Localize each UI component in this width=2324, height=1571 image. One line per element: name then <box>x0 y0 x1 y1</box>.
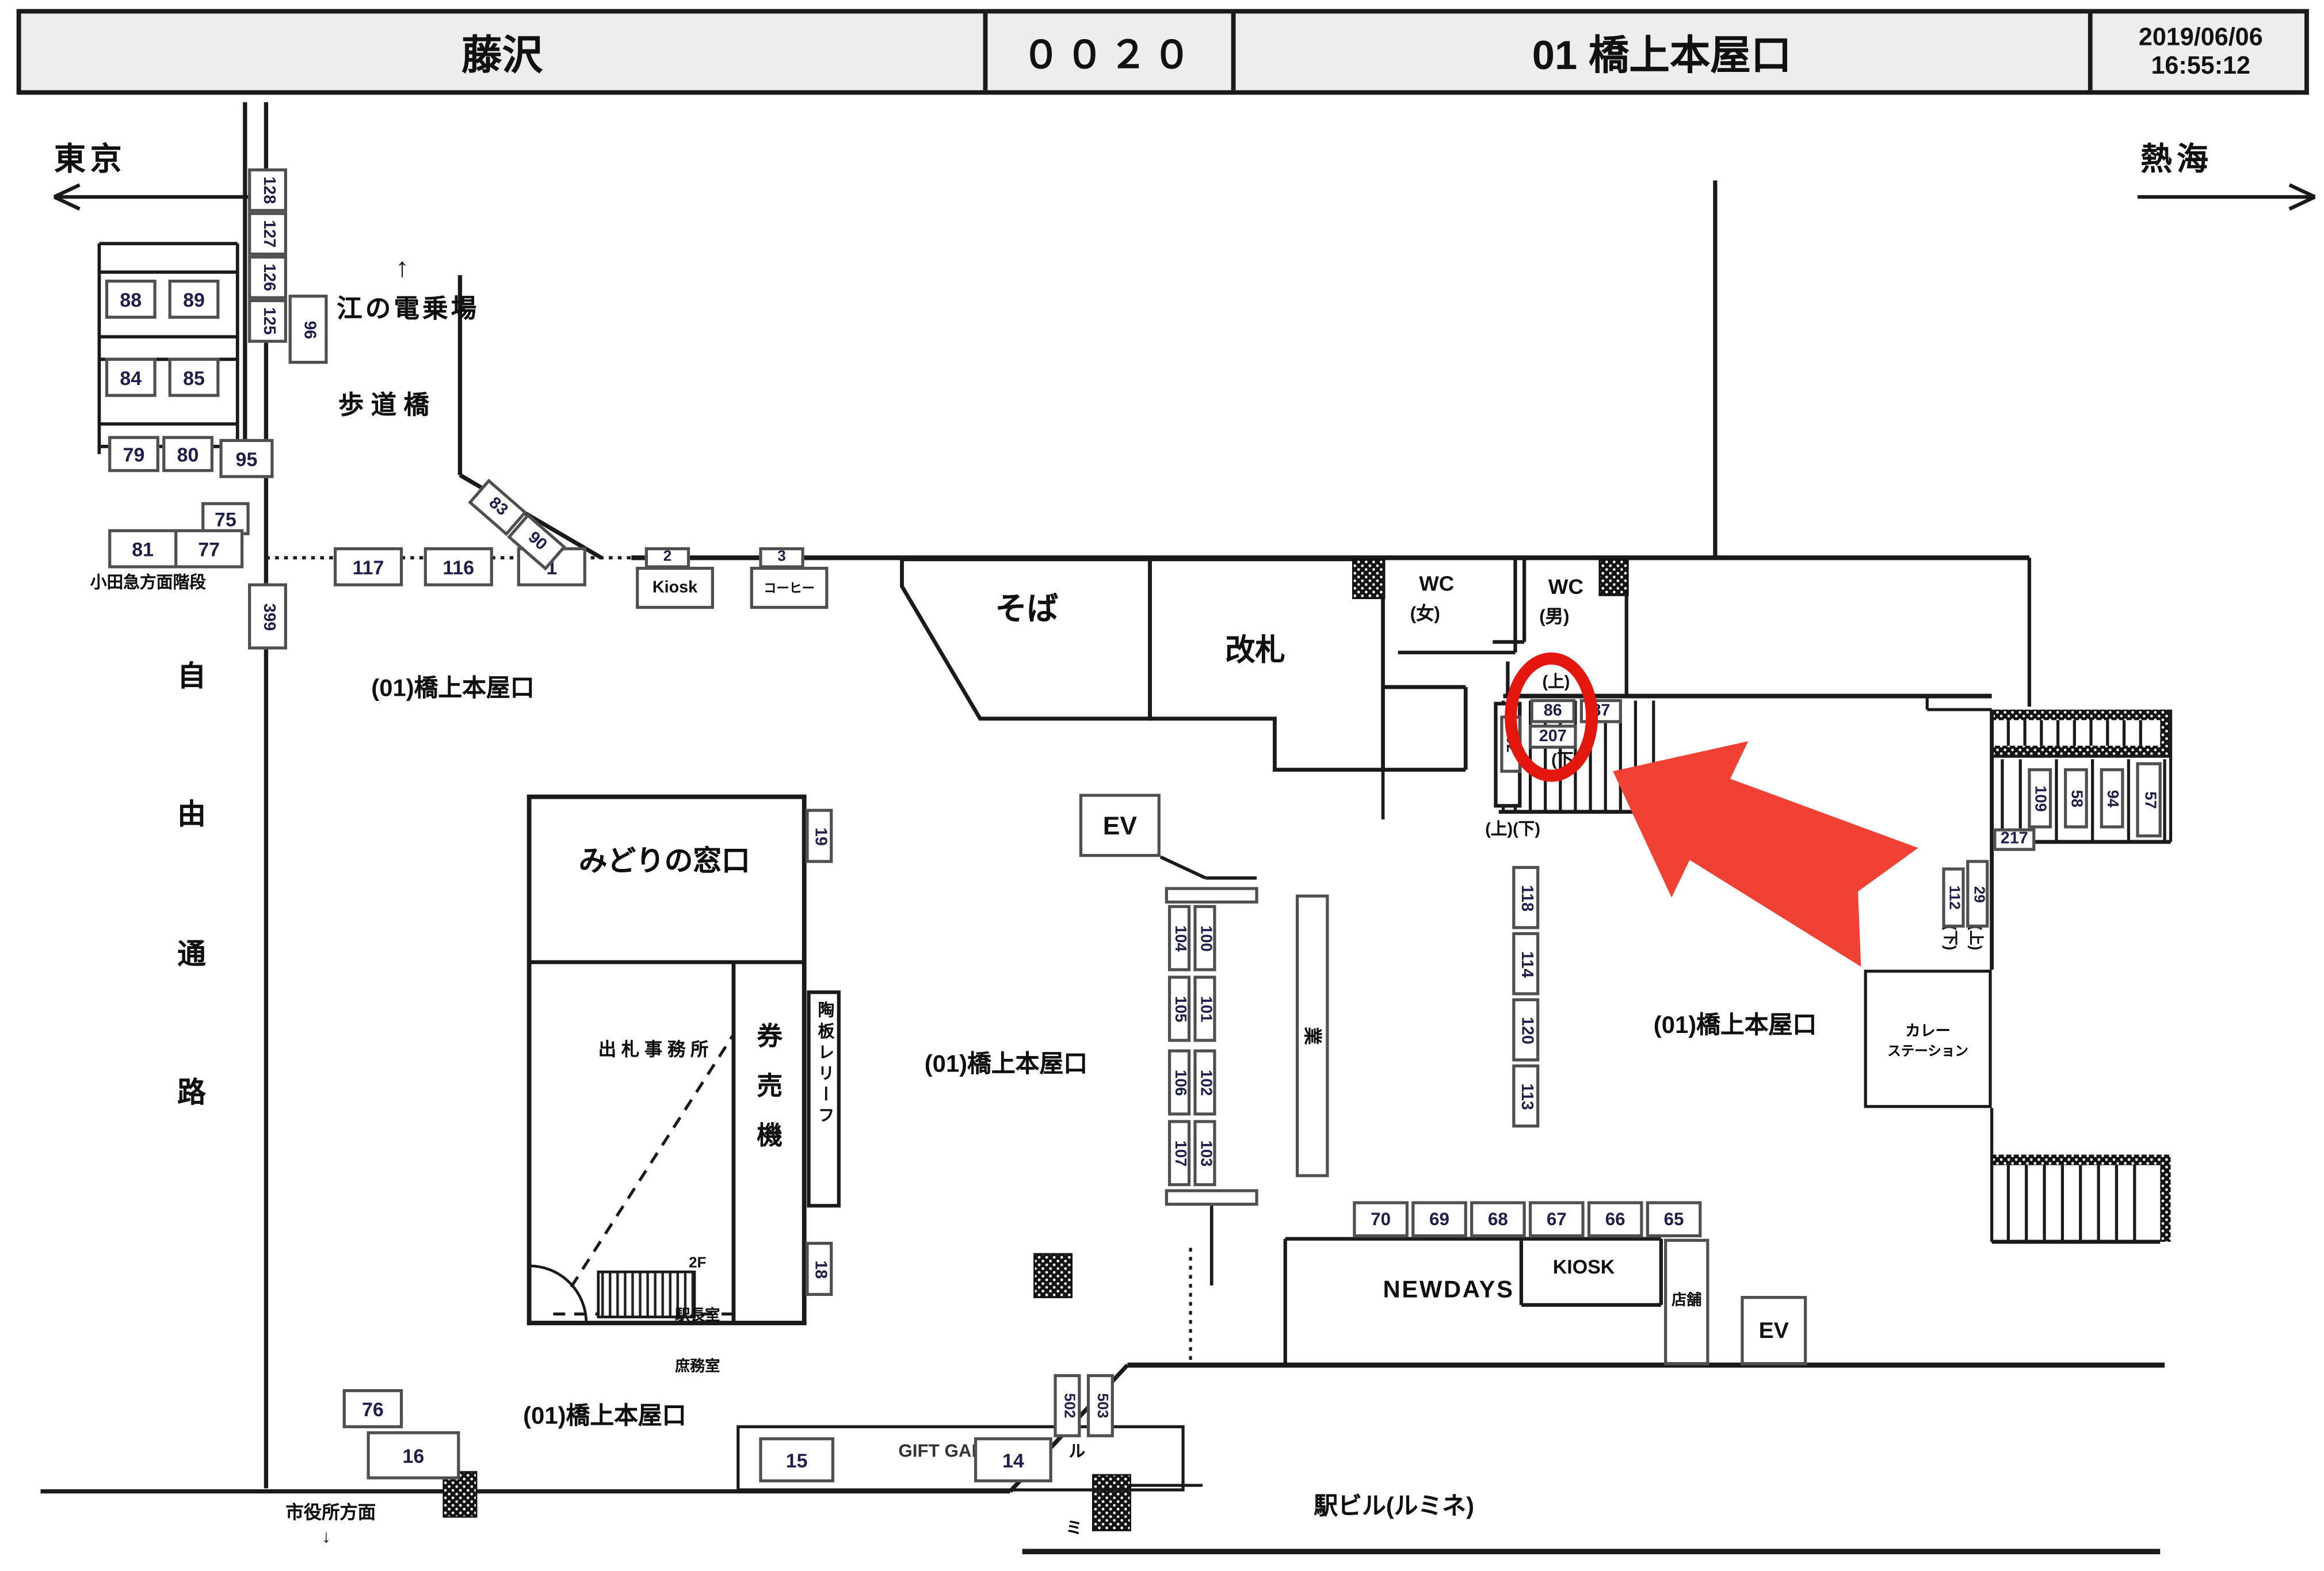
box-109: 109 <box>2028 768 2052 829</box>
lower-right-staircase <box>1992 1108 2171 1242</box>
box-127: 127 <box>248 212 287 256</box>
box-57: 57 <box>2136 762 2161 838</box>
newdays-walls <box>1127 1239 2165 1365</box>
box-117: 117 <box>334 547 403 586</box>
box-88: 88 <box>105 280 157 319</box>
wc-female-label: WC <box>1419 571 1454 596</box>
box-102: 102 <box>1193 1050 1216 1116</box>
box-217: 217 <box>1993 829 2035 851</box>
box-94: 94 <box>2100 768 2124 829</box>
box-66: 66 <box>1588 1201 1643 1237</box>
header-divider-3 <box>2088 14 2093 90</box>
header-divider-1 <box>983 14 988 90</box>
midori-label: みどりの窓口 <box>579 846 750 879</box>
box-18: 18 <box>806 1242 833 1296</box>
box-128: 128 <box>248 169 287 212</box>
wc-male-label: WC <box>1548 574 1583 598</box>
wc-male-sub: (男) <box>1539 607 1569 628</box>
box-113: 113 <box>1512 1065 1539 1128</box>
box-79: 79 <box>108 436 159 472</box>
shiyakusho-label: 市役所方面 <box>285 1504 376 1524</box>
box-103: 103 <box>1193 1120 1216 1186</box>
corner-label-3: (01)橋上本屋口 <box>1654 1013 1817 1041</box>
platform-ladder <box>99 243 237 454</box>
box-96: 96 <box>289 295 328 364</box>
time-text: 16:55:12 <box>2151 52 2250 81</box>
direction-west: 東京 <box>54 143 126 179</box>
elevator-1: EV <box>1079 794 1161 857</box>
box-126: 126 <box>248 256 287 299</box>
box-100: 100 <box>1193 905 1216 971</box>
box-84: 84 <box>105 358 157 397</box>
box-112: 112 <box>1942 867 1964 928</box>
box-67: 67 <box>1529 1201 1585 1237</box>
box-502: 502 <box>1054 1374 1081 1437</box>
pillar-sign: 業 <box>1296 894 1329 1177</box>
box-58: 58 <box>2064 768 2088 829</box>
station-name: 藤沢 <box>21 14 983 90</box>
pillar-cap-top <box>1165 887 1258 903</box>
box-15: 15 <box>759 1437 834 1482</box>
kaisatsu-label: 改札 <box>1225 634 1285 669</box>
box-80: 80 <box>162 436 213 472</box>
toban-relief-label: 陶板レリーフ <box>815 1001 834 1127</box>
enoden-up-arrow: ↑ <box>395 253 409 284</box>
box-14: 14 <box>974 1437 1052 1482</box>
box-85: 85 <box>169 358 220 397</box>
timestamp: 2019/06/06 16:55:12 <box>2093 14 2309 90</box>
box-81: 81 <box>108 529 177 569</box>
west-arrow-icon <box>54 185 253 209</box>
box-104: 104 <box>1168 905 1190 971</box>
box-116: 116 <box>424 547 493 586</box>
box-3: 3 <box>759 547 804 569</box>
kiosk-small-shop: Kiosk <box>636 567 714 609</box>
box-399: 399 <box>248 584 287 650</box>
odakyu-label: 小田急方面階段 <box>90 574 206 593</box>
header-bar: 藤沢 ００２０ 01 橋上本屋口 2019/06/06 16:55:12 <box>17 9 2309 95</box>
hodokyo-label: 歩 道 橋 <box>338 391 429 420</box>
corner-label-1: (01)橋上本屋口 <box>371 677 534 704</box>
direction-east: 熱海 <box>2140 143 2212 179</box>
east-arrow-icon <box>2138 185 2315 209</box>
elevator-2: EV <box>1741 1296 1807 1365</box>
soba-label: そば <box>995 592 1059 628</box>
box-118: 118 <box>1512 866 1539 929</box>
station-code: ００２０ <box>987 14 1231 90</box>
box-125: 125 <box>248 299 287 343</box>
corner-label-4: (01)橋上本屋口 <box>523 1404 686 1432</box>
curry-station-room: カレー ステーション <box>1864 970 1992 1108</box>
shussatsu-label: 出 札 事 務 所 <box>598 1040 709 1061</box>
floorplan-linework <box>0 0 2324 1571</box>
box-106: 106 <box>1168 1050 1190 1116</box>
enoden-label: 江の電乗場 <box>337 295 479 324</box>
right-down-label: (下) <box>1940 925 1957 951</box>
box-95: 95 <box>219 439 273 478</box>
highlight-circle-icon <box>1505 653 1598 782</box>
box-16: 16 <box>367 1431 460 1480</box>
box-89: 89 <box>169 280 220 319</box>
date-text: 2019/06/06 <box>2139 23 2263 52</box>
kenbaiki-label: 券売機 <box>751 1023 781 1172</box>
box-76: 76 <box>343 1389 403 1428</box>
newdays-label: NEWDAYS <box>1383 1278 1514 1306</box>
box-68: 68 <box>1470 1201 1526 1237</box>
ekibiru-label: 駅ビル(ルミネ) <box>1314 1494 1474 1522</box>
box-2: 2 <box>645 547 690 569</box>
box-70: 70 <box>1353 1201 1409 1237</box>
screen-title: 01 橋上本屋口 <box>1236 14 2088 90</box>
box-101: 101 <box>1193 976 1216 1042</box>
box-107: 107 <box>1168 1120 1190 1186</box>
box-19: 19 <box>806 809 833 863</box>
jiyu-tsuro-label: 自 由 通 路 <box>177 596 209 1177</box>
stairs-updown-label: (上)(下) <box>1485 821 1540 840</box>
upper-right-staircase <box>1927 696 2170 970</box>
box-77: 77 <box>174 529 243 569</box>
kiosk-label: KIOSK <box>1553 1257 1615 1279</box>
box-503: 503 <box>1087 1374 1114 1437</box>
header-divider-2 <box>1231 14 1236 90</box>
box-69: 69 <box>1411 1201 1467 1237</box>
wc-female-sub: (女) <box>1410 604 1440 625</box>
box-114: 114 <box>1512 932 1539 996</box>
shiyakusho-arrow: ↓ <box>322 1527 331 1548</box>
right-up-label: (上) <box>1966 925 1983 951</box>
box-65: 65 <box>1646 1201 1702 1237</box>
pillar-cap-bottom <box>1165 1189 1258 1206</box>
tenpo-shop: 店舗 <box>1664 1239 1709 1365</box>
box-29: 29 <box>1966 860 1989 928</box>
station-map-page: 藤沢 ００２０ 01 橋上本屋口 2019/06/06 16:55:12 東京 … <box>0 0 2324 1571</box>
stationmaster-label: 2F 駅長室 庶務室 <box>667 1221 728 1410</box>
box-120: 120 <box>1512 998 1539 1062</box>
corner-label-2: (01)橋上本屋口 <box>925 1053 1087 1080</box>
box-105: 105 <box>1168 976 1190 1042</box>
coffee-shop: コーヒー <box>750 567 829 609</box>
